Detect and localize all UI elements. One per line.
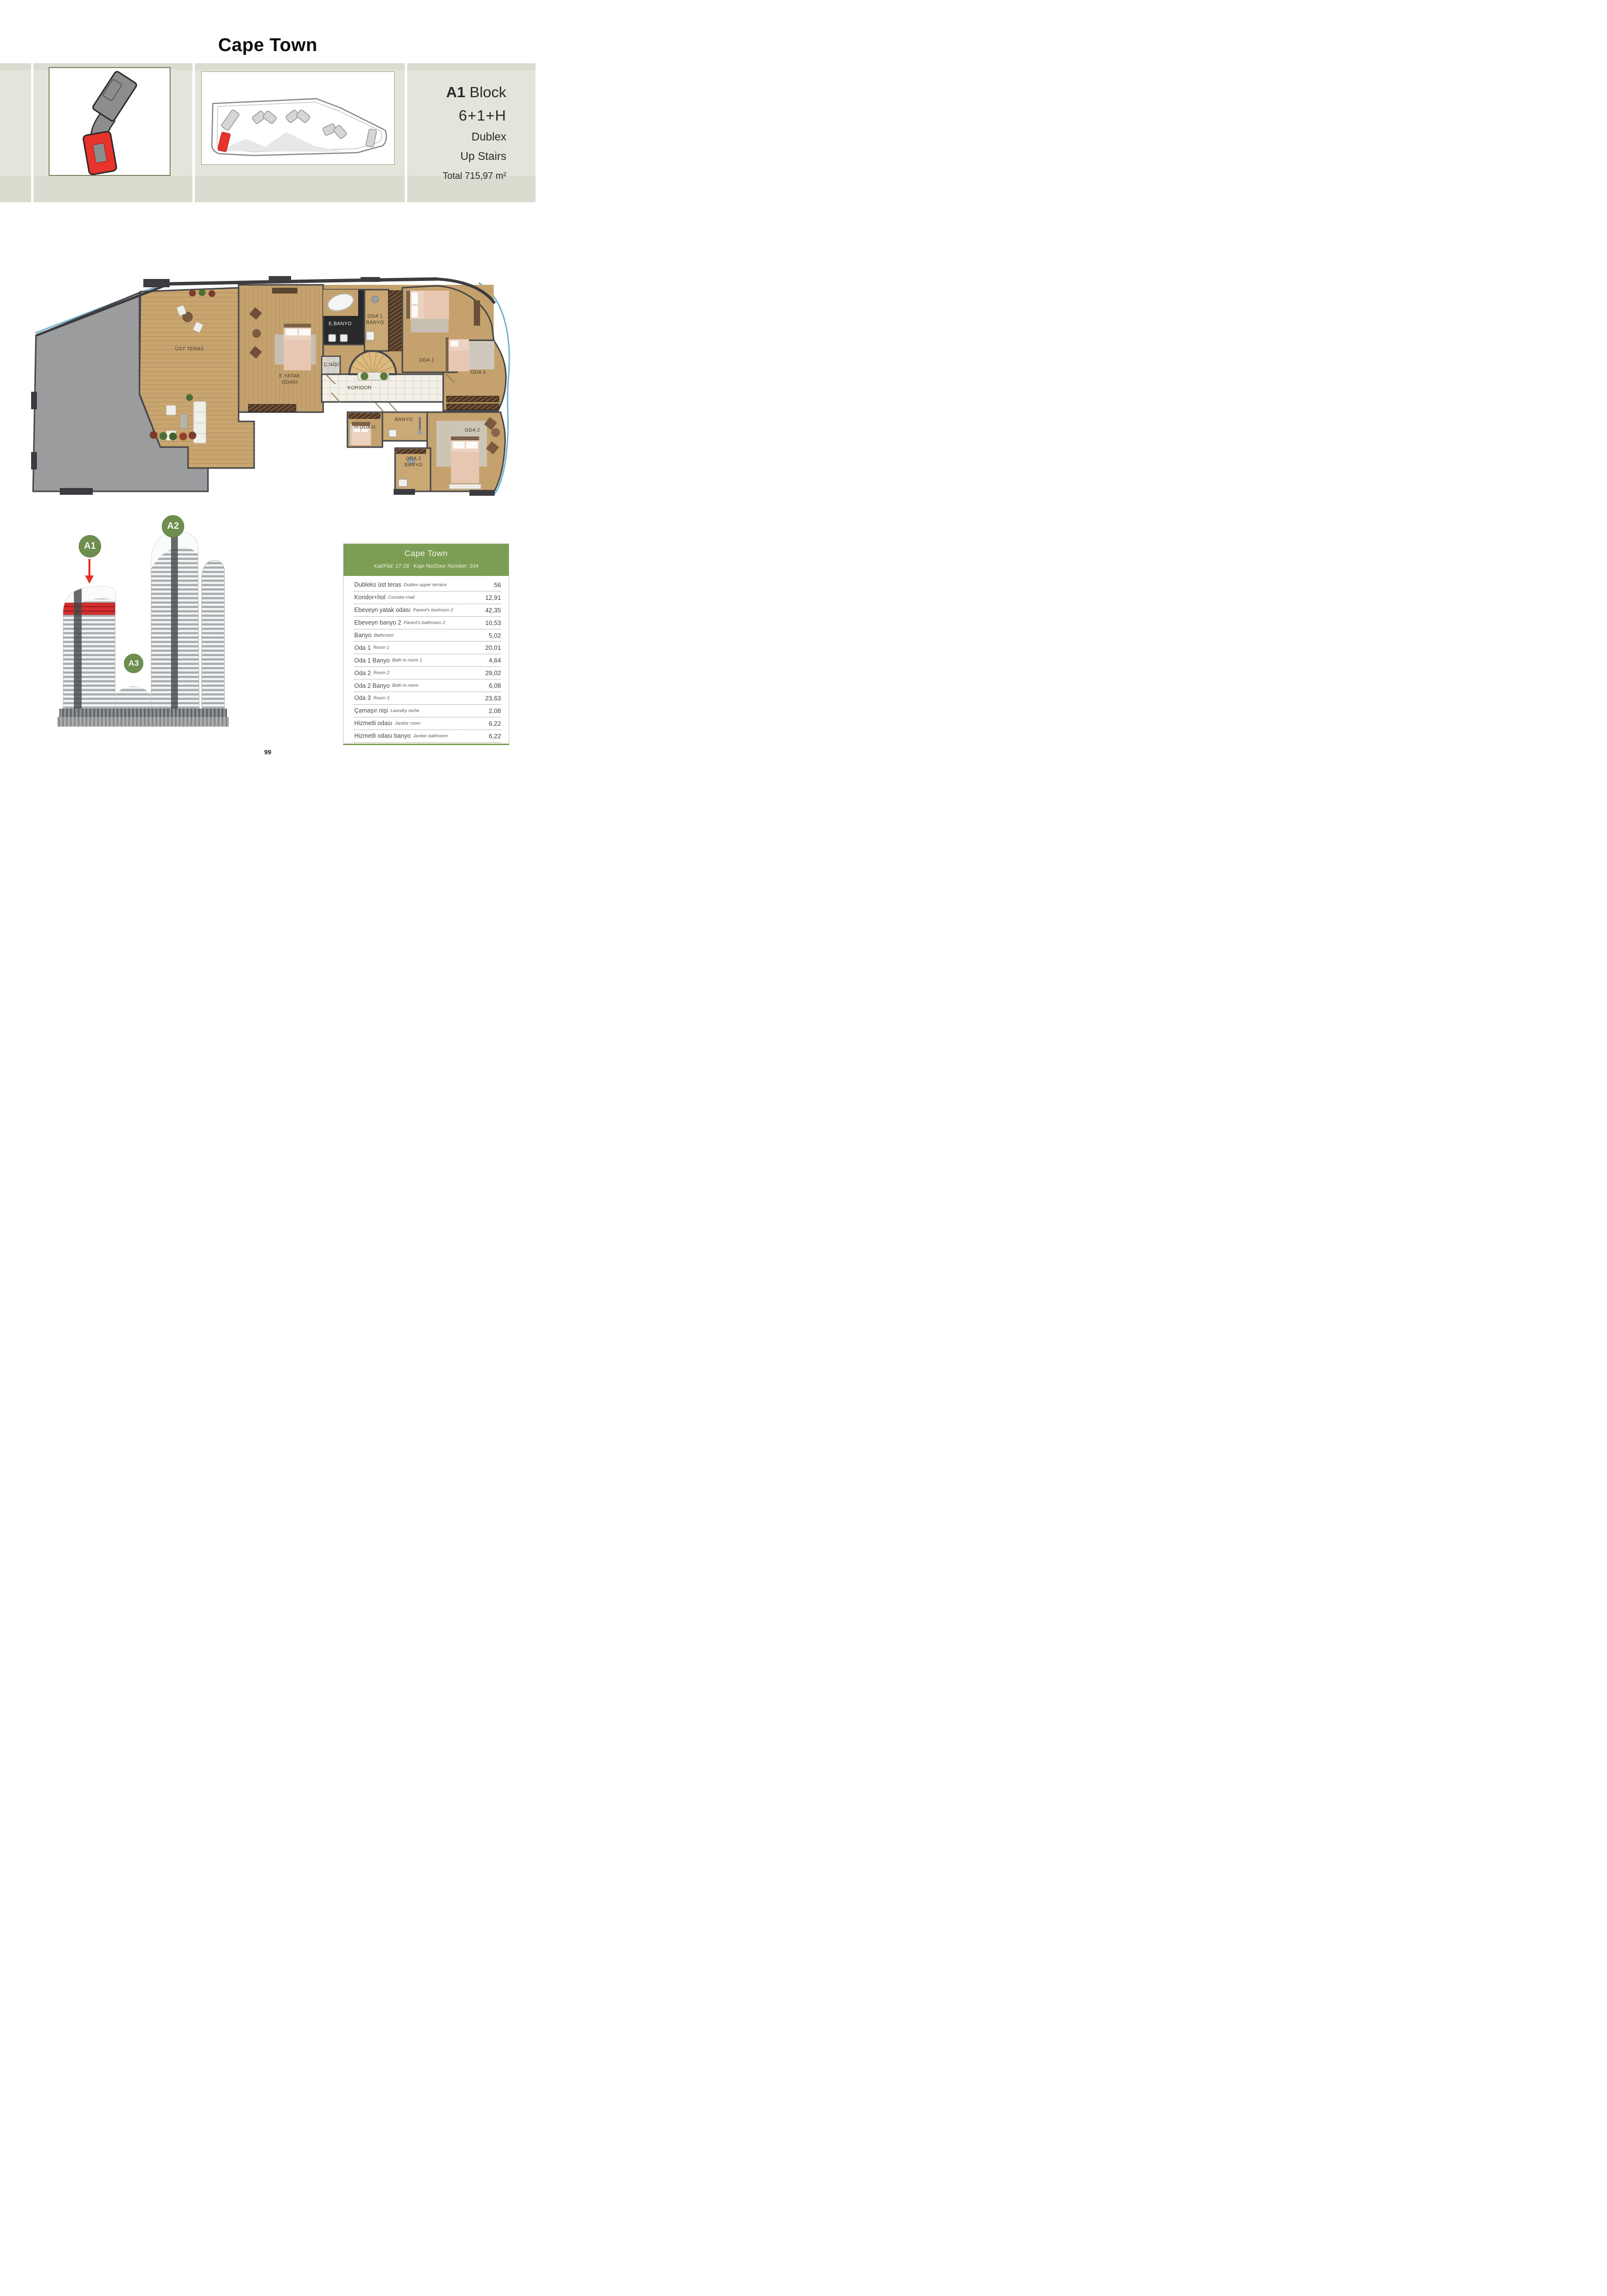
area-table: Cape Town Kat/Flat: 27-28 Kapı No/Door N… [343,543,509,745]
arrow-a1 [85,559,94,584]
block-name: A1 Block [446,84,506,101]
brochure-page: { "page": { "title": "Cape Town", "page_… [0,0,536,765]
floor-plan [29,272,520,505]
podium [59,709,227,717]
table-row: Oda 3Room 323,63 [354,692,501,705]
wardrobe [389,291,402,351]
highlighted-floors [62,603,117,615]
tower-wing [202,560,225,710]
table-row: Oda 2Room 229,02 [354,667,501,679]
room-c-nisi [322,356,340,374]
page-title: Cape Town [0,35,536,56]
badge-a2: A2 [162,515,184,538]
room-oda2-banyo [395,448,431,491]
table-row: Çamaşır nişiLaundry niche2,08 [354,705,501,717]
room-e-banyo [323,290,364,345]
wardrobe [447,404,499,410]
table-row: Hizmetli odasıJanitor room6,22 [354,717,501,730]
badge-a3: A3 [124,654,143,673]
table-row: Oda 1Room 120,01 [354,642,501,654]
band-divider [192,63,195,202]
band-divider [31,63,34,202]
block-keyplan-box [49,67,171,176]
room-oda2 [427,412,505,491]
room-oda1-banyo [364,290,402,351]
block-footprint-keyplan-icon [50,68,170,175]
room-h-odasi [347,412,382,447]
wardrobe [348,413,380,419]
room-e-yatak-odasi [239,285,323,412]
room-banyo [382,412,427,441]
unit-layout: 6+1+H [459,107,506,124]
block-code: A1 [446,84,466,101]
table-row: BanyoBathroom5,02 [354,629,501,642]
band-divider [405,63,407,202]
building-elevation [49,515,238,734]
room-oda3 [443,337,506,411]
table-subtitle: Kat/Flat: 27-28 Kapı No/Door Number: 104 [344,563,509,569]
unit-type: Dublex [471,130,506,143]
table-row: Dubleks üst terasDublex upper terrace56 [354,579,501,591]
unit-floor: Up Stairs [460,150,506,163]
area-table-header: Cape Town Kat/Flat: 27-28 Kapı No/Door N… [344,544,509,577]
table-row: Koridor+holCorridor+hall12,91 [354,591,501,604]
page-number: 99 [0,748,536,756]
badge-a1: A1 [79,535,101,557]
area-table-rows: Dubleks üst terasDublex upper terrace56 … [344,577,509,744]
wardrobe [447,396,499,402]
table-row: Oda 1 BanyoBath in room 14,64 [354,654,501,667]
table-row: Ebeveyn yatak odasıParent's bedroom 242,… [354,604,501,617]
unit-total-area: Total 715,97 m² [443,171,506,182]
table-row: Hizmetli odası banyoJanitor bathroom6,22 [354,730,501,743]
table-row: Ebeveyn banyo 2Parent's bathroom 210,53 [354,617,501,629]
table-row: Oda 2 BanyoBath in room6,08 [354,679,501,692]
table-title: Cape Town [344,549,509,558]
site-floorplate-keyplan-icon [202,72,394,164]
site-keyplan-box [201,71,395,165]
